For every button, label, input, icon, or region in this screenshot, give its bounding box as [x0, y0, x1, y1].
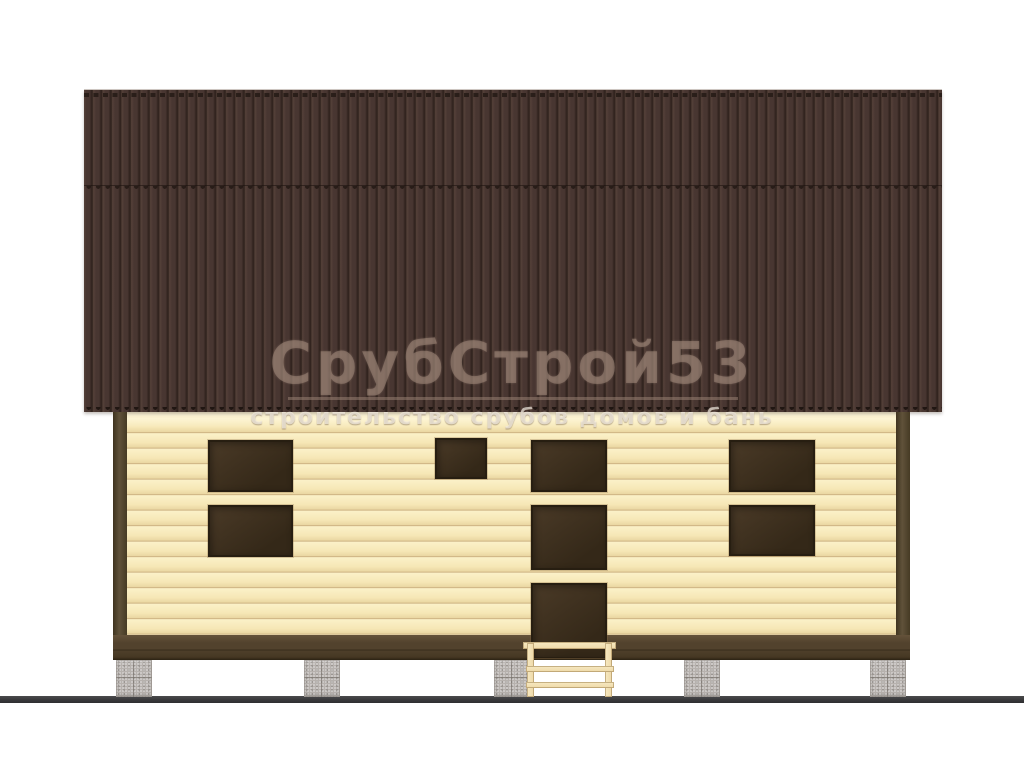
- foundation-pier: [304, 660, 340, 697]
- window-opening: [531, 505, 607, 570]
- roof-sheet-seam: [84, 185, 942, 193]
- foundation-pier: [494, 660, 530, 697]
- plinth-band: [113, 635, 910, 660]
- foundation-pier: [684, 660, 720, 697]
- foundation-pier: [116, 660, 152, 697]
- roof: [84, 90, 942, 412]
- ladder-rung: [526, 682, 614, 688]
- roof-eave-edge: [84, 407, 942, 413]
- window-opening: [208, 505, 293, 557]
- corner-post-right: [896, 412, 910, 635]
- window-opening: [531, 440, 607, 492]
- foundation-pier: [870, 660, 906, 697]
- ladder-top-rail: [523, 642, 616, 649]
- ground-line: [0, 696, 1024, 703]
- roof-ridge-dashes: [84, 93, 942, 97]
- window-opening: [208, 440, 293, 492]
- watermark-underline: [288, 397, 738, 400]
- window-opening: [729, 440, 815, 492]
- corner-post-left: [113, 412, 127, 635]
- house-elevation-scene: СрубСтрой53 строительство срубов домов и…: [0, 0, 1024, 768]
- ladder-rung: [526, 666, 614, 672]
- window-opening: [729, 505, 815, 556]
- small-window-opening: [435, 438, 487, 479]
